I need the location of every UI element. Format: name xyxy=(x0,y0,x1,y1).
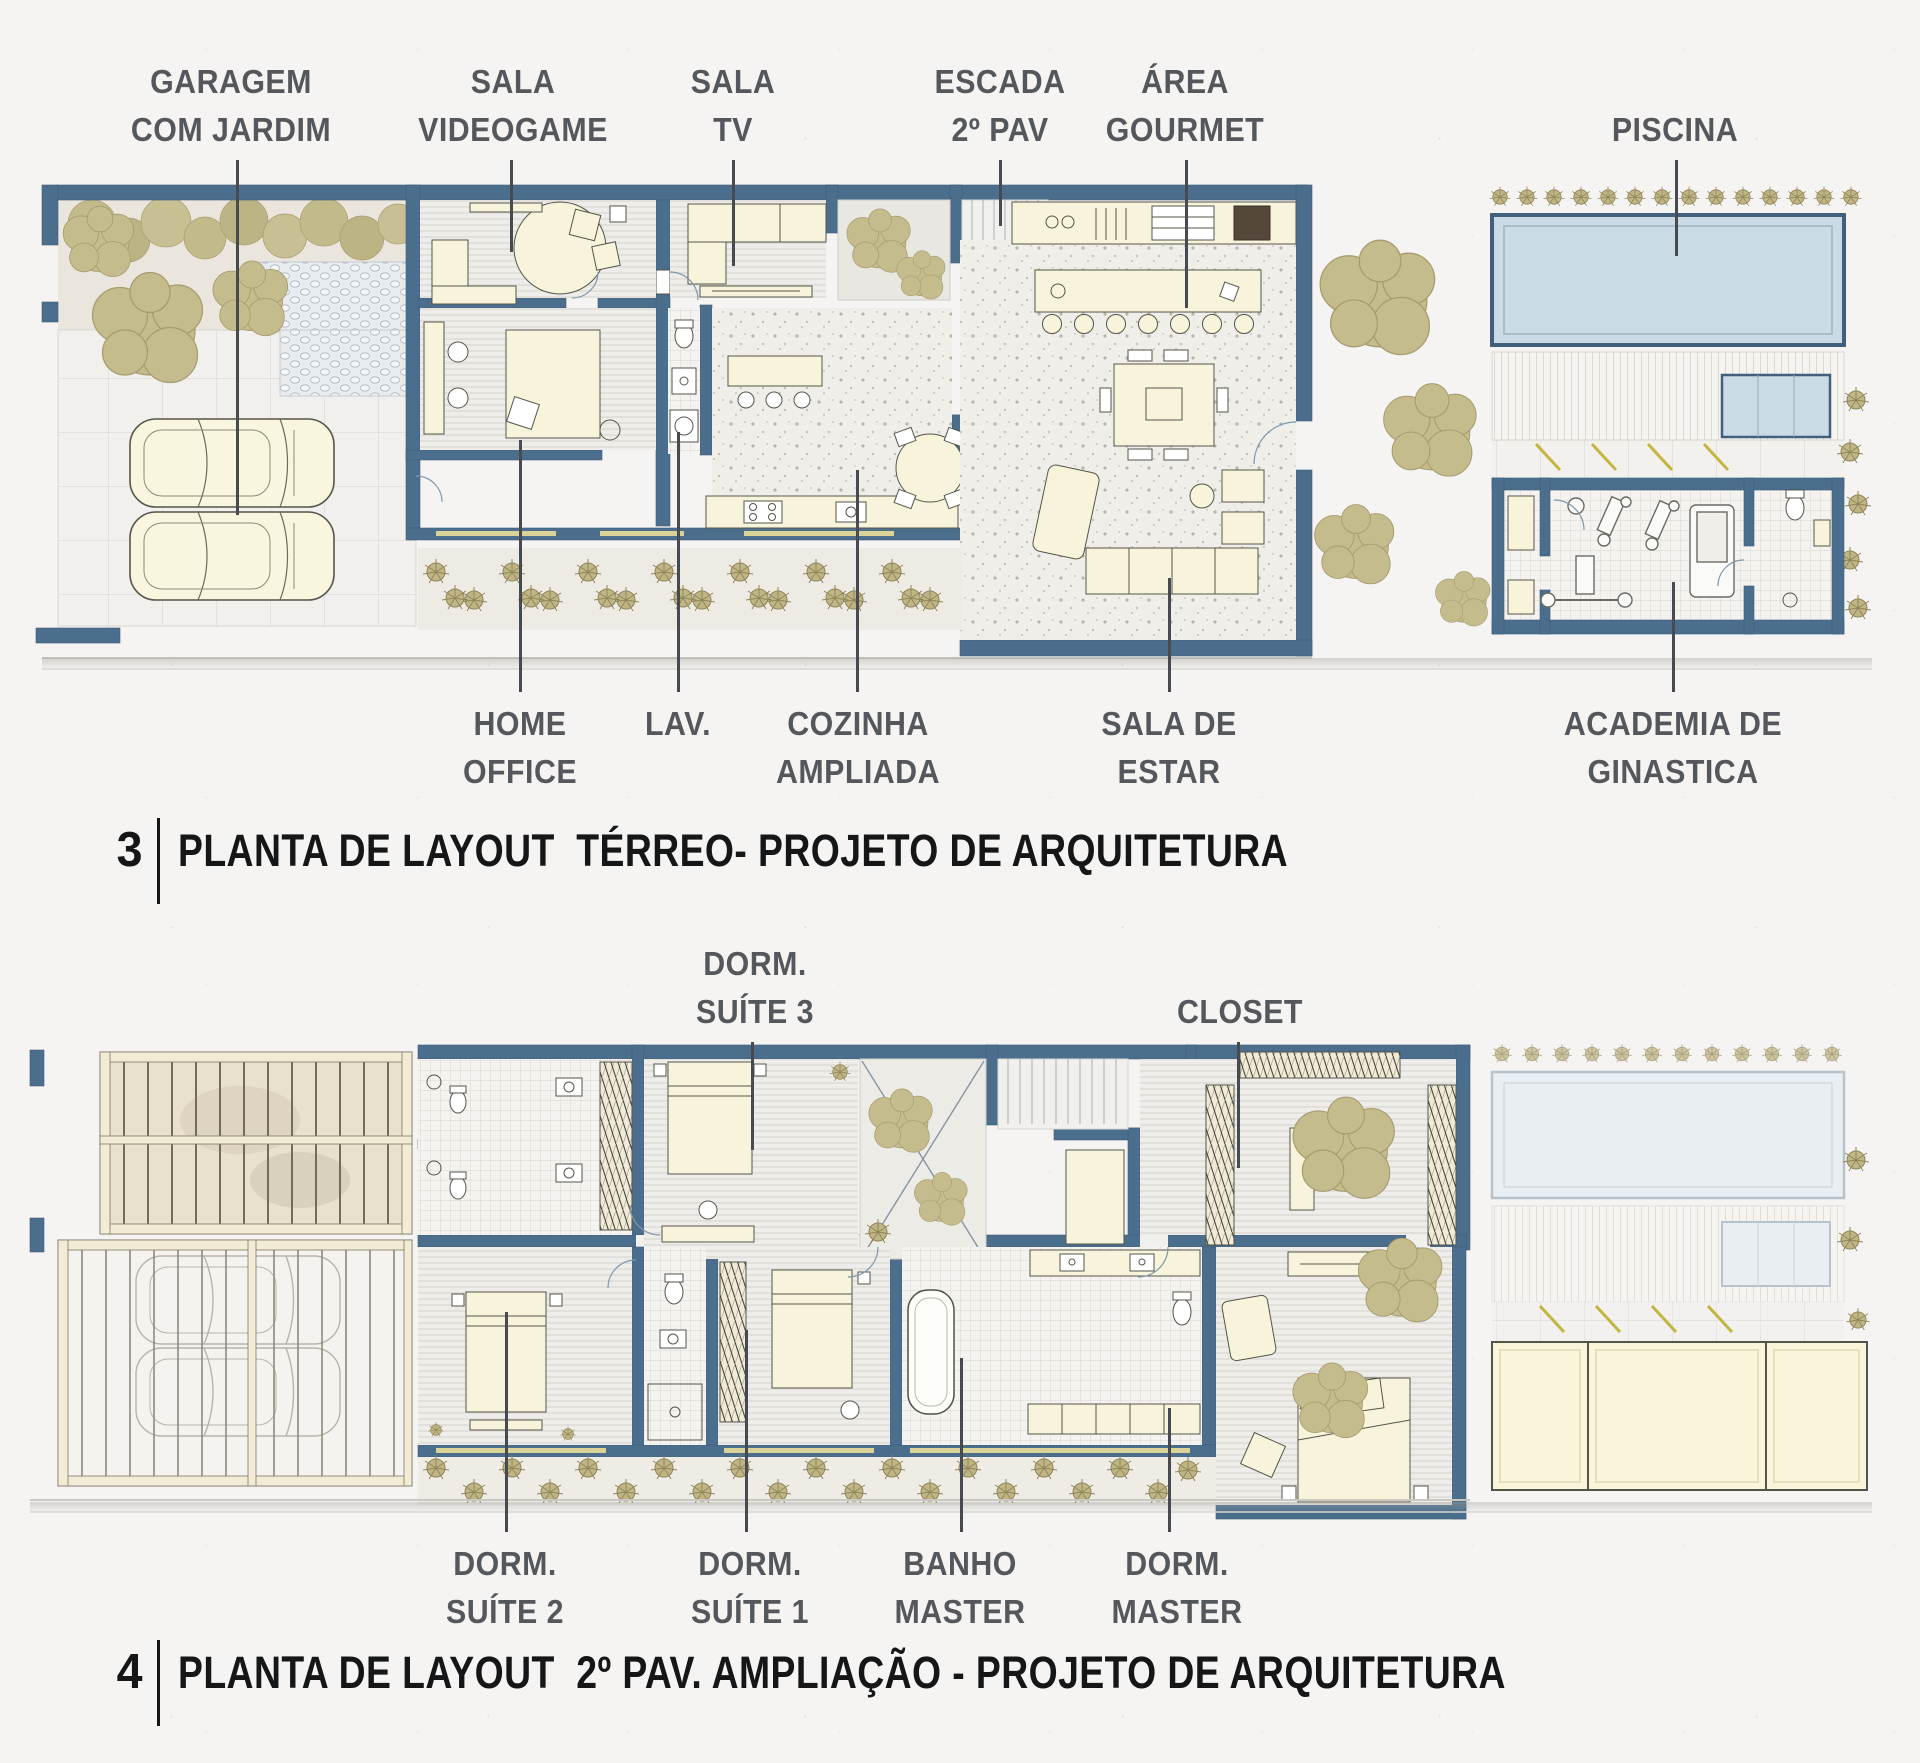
suite-bath xyxy=(644,1247,706,1445)
banho-master xyxy=(902,1247,1202,1445)
label-escada-2-pav: ESCADA 2º PAV xyxy=(935,58,1066,154)
plan-2-segundo-pav xyxy=(30,1044,1872,1519)
label-area-gourmet: ÁREA GOURMET xyxy=(1106,58,1264,154)
leader-suite-2 xyxy=(505,1312,508,1532)
academia-ginastica xyxy=(1492,478,1844,634)
label-sala-videogame: SALA VIDEOGAME xyxy=(418,58,608,154)
figure-number: 3 xyxy=(117,826,143,875)
leader-gourmet xyxy=(1185,160,1188,308)
label-academia-ginastica: ACADEMIA DE GINASTICA xyxy=(1564,700,1782,796)
label-line: DORM. xyxy=(691,1540,809,1588)
label-dorm-suite-3: DORM. SUÍTE 3 xyxy=(696,940,814,1036)
leader-piscina xyxy=(1675,160,1678,256)
label-line: GINASTICA xyxy=(1564,748,1782,796)
home-office xyxy=(420,308,656,450)
leader-suite-1 xyxy=(745,1330,748,1532)
label-line: PISCINA xyxy=(1612,106,1738,154)
hot-tub xyxy=(1722,375,1830,437)
gym-roof xyxy=(1492,1342,1867,1490)
label-line: ESCADA xyxy=(935,58,1066,106)
figure-caption: PLANTA DE LAYOUT TÉRREO- PROJETO DE ARQU… xyxy=(178,826,1288,876)
label-line: MASTER xyxy=(895,1588,1026,1636)
pergola-garden xyxy=(100,1052,412,1234)
leader-cozinha xyxy=(856,470,859,692)
rear-garden-strip xyxy=(418,1455,1216,1505)
label-line: OFFICE xyxy=(463,748,577,796)
label-line: 2º PAV xyxy=(935,106,1066,154)
label-line: VIDEOGAME xyxy=(418,106,608,154)
label-line: ACADEMIA DE xyxy=(1564,700,1782,748)
sheet-canvas: GARAGEM COM JARDIM SALA VIDEOGAME SALA T… xyxy=(0,0,1920,1763)
label-line: SALA xyxy=(418,58,608,106)
label-line: CLOSET xyxy=(1177,988,1303,1036)
label-garagem-com-jardim: GARAGEM COM JARDIM xyxy=(131,58,331,154)
dorm-suite-3 xyxy=(630,1059,858,1259)
label-banho-master: BANHO MASTER xyxy=(895,1540,1026,1636)
label-sala-de-estar: SALA DE ESTAR xyxy=(1101,700,1236,796)
label-dorm-suite-2: DORM. SUÍTE 2 xyxy=(446,1540,564,1636)
label-line: DORM. xyxy=(1112,1540,1243,1588)
label-dorm-suite-1: DORM. SUÍTE 1 xyxy=(691,1540,809,1636)
label-line: COM JARDIM xyxy=(131,106,331,154)
label-line: DORM. xyxy=(696,940,814,988)
label-line: ÁREA xyxy=(1106,58,1264,106)
label-dorm-master: DORM. MASTER xyxy=(1112,1540,1243,1636)
cozinha xyxy=(706,308,966,528)
label-line: SUÍTE 2 xyxy=(446,1588,564,1636)
front-garden-strip xyxy=(418,548,962,630)
label-line: AMPLIADA xyxy=(776,748,940,796)
figure-caption: PLANTA DE LAYOUT 2º PAV. AMPLIAÇÃO - PRO… xyxy=(178,1648,1506,1698)
pool xyxy=(1492,215,1844,345)
dorm-suite-1 xyxy=(718,1247,890,1445)
car xyxy=(130,512,334,600)
sala-videogame xyxy=(420,200,656,304)
label-line: GOURMET xyxy=(1106,106,1264,154)
leader-lav xyxy=(677,432,680,692)
leader-escada xyxy=(999,160,1002,226)
sala-tv xyxy=(670,200,826,298)
label-line: TV xyxy=(691,106,775,154)
suite3-bathrooms xyxy=(418,1059,632,1235)
label-home-office: HOME OFFICE xyxy=(463,700,577,796)
leader-academia xyxy=(1672,582,1675,692)
label-line: SUÍTE 3 xyxy=(696,988,814,1036)
lavanderia xyxy=(668,308,700,454)
plan-1-terreo xyxy=(36,185,1872,670)
patio-garden xyxy=(838,200,950,300)
label-line: BANHO xyxy=(895,1540,1026,1588)
label-closet: CLOSET xyxy=(1177,988,1303,1036)
label-line: SALA DE xyxy=(1101,700,1236,748)
stairs-2 xyxy=(998,1059,1202,1244)
leader-sala-tv xyxy=(732,160,735,266)
car xyxy=(130,419,334,507)
caption-divider xyxy=(157,818,160,904)
leader-home-office xyxy=(519,440,522,692)
caption-figure-3: 3 PLANTA DE LAYOUT TÉRREO- PROJETO DE AR… xyxy=(116,826,1515,904)
label-line: GARAGEM xyxy=(131,58,331,106)
label-line: SALA xyxy=(691,58,775,106)
caption-figure-4: 4 PLANTA DE LAYOUT 2º PAV. AMPLIAÇÃO - P… xyxy=(116,1648,1778,1726)
leader-banho-master xyxy=(960,1358,963,1532)
label-line: SUÍTE 1 xyxy=(691,1588,809,1636)
leader-suite-3 xyxy=(751,1042,754,1150)
label-piscina: PISCINA xyxy=(1612,106,1738,154)
label-lav: LAV. xyxy=(645,700,711,748)
label-cozinha-ampliada: COZINHA AMPLIADA xyxy=(776,700,940,796)
leader-closet xyxy=(1237,1042,1240,1168)
label-line: HOME xyxy=(463,700,577,748)
patio-void xyxy=(860,1059,986,1259)
leader-videogame xyxy=(510,160,513,252)
pool-faded xyxy=(1492,1072,1844,1198)
caption-divider xyxy=(157,1640,160,1726)
leader-dorm-master xyxy=(1168,1408,1171,1532)
label-line: DORM. xyxy=(446,1540,564,1588)
label-line: MASTER xyxy=(1112,1588,1243,1636)
leader-estar xyxy=(1168,578,1171,692)
label-line: LAV. xyxy=(645,700,711,748)
leader-garagem xyxy=(236,160,239,515)
figure-number: 4 xyxy=(117,1648,143,1697)
dorm-suite-2 xyxy=(418,1247,636,1445)
label-line: ESTAR xyxy=(1101,748,1236,796)
label-line: COZINHA xyxy=(776,700,940,748)
label-sala-tv: SALA TV xyxy=(691,58,775,154)
